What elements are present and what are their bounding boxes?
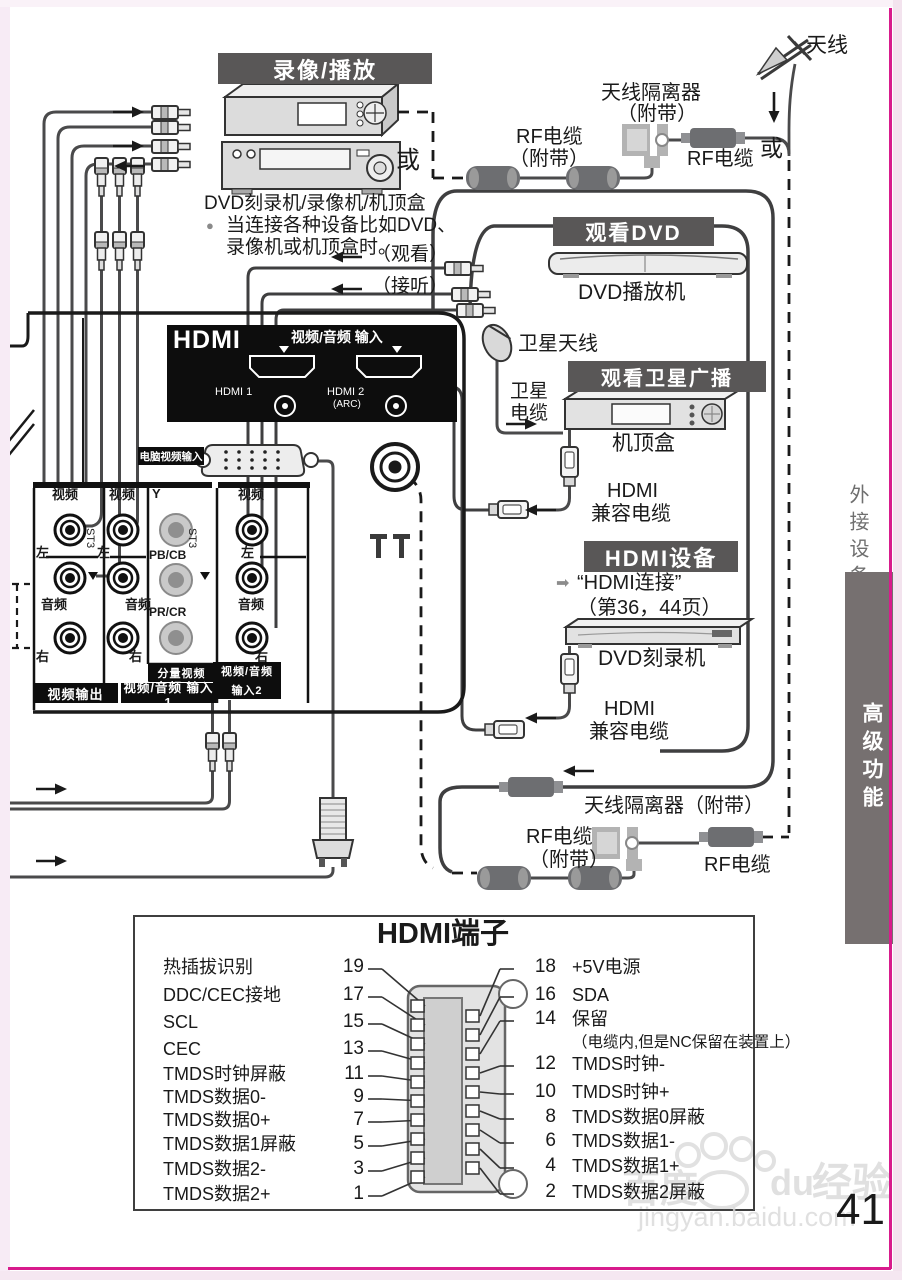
isolator-label-2: （附带） xyxy=(617,103,697,125)
hdmi2-label: HDMI 2 xyxy=(327,386,364,398)
frame-margin-bottom xyxy=(0,1271,902,1280)
rf-isolator-top xyxy=(622,124,668,168)
satellite-dish-label: 卫星天线 xyxy=(518,333,598,355)
antenna-icon xyxy=(758,36,811,79)
hdmi-cable-1a: HDMI xyxy=(607,480,658,502)
jack-audio-1: 音频 xyxy=(41,598,67,612)
frame-line-bottom xyxy=(8,1267,891,1270)
frame-margin-right xyxy=(893,0,902,1280)
jack-left-2: 左 xyxy=(97,546,110,560)
jack-y: Y xyxy=(152,487,161,501)
rf-cable-included-1: RF电缆 xyxy=(516,126,583,148)
pin-number-right: 16 xyxy=(518,985,556,1006)
pin-number-left: 15 xyxy=(300,1012,364,1033)
isolator-bottom-label: 天线隔离器（附带） xyxy=(584,795,764,817)
pinout-title: HDMI端子 xyxy=(133,919,753,951)
sidebar-section-external-devices: 外接设备 xyxy=(846,484,868,584)
frame-line-right xyxy=(889,8,892,1269)
jack-left-4: 左 xyxy=(241,546,254,560)
pin-number-left: 19 xyxy=(300,957,364,978)
jack-video-4: 视频 xyxy=(238,488,264,502)
rf-plug-bottom-left xyxy=(499,777,563,797)
jack-audio-4: 音频 xyxy=(238,598,264,612)
av-in1-label: 视频/音频 输入1 xyxy=(121,683,216,703)
set-top-box-label: 机顶盒 xyxy=(612,432,675,455)
rca-cluster-top xyxy=(152,106,190,171)
header-watch-satellite: 观看卫星广播 xyxy=(568,361,766,392)
vcr-device xyxy=(222,142,400,194)
rf-cable-label: RF电缆 xyxy=(687,148,754,170)
video-out-label: 视频输出 xyxy=(33,683,118,703)
pin-number-left: 5 xyxy=(300,1134,364,1155)
frame-margin-left xyxy=(0,0,10,1280)
set-top-box-device xyxy=(565,389,741,429)
pc-video-input-label: 电脑视频输入 xyxy=(138,447,204,465)
sidebar-tab-label: 高级功能 xyxy=(856,702,886,814)
hdmi-cable-2a: HDMI xyxy=(604,698,655,720)
dvd-recorder-label: DVD刻录机 xyxy=(598,647,705,670)
pin-number-left: 11 xyxy=(300,1064,364,1085)
pin-number-left: 3 xyxy=(300,1159,364,1180)
device-caption: DVD刻录机/录像机/机顶盒 xyxy=(204,194,426,215)
pin-number-right: 12 xyxy=(518,1054,556,1075)
jack-pb: PB/CB xyxy=(149,549,186,562)
jack-right-1: 右 xyxy=(36,650,49,664)
pin-label-right: TMDS数据1- xyxy=(572,1132,892,1152)
rf-plug-top xyxy=(681,128,745,148)
st3-label-2: ST3 xyxy=(186,528,198,548)
pin-number-right: 14 xyxy=(518,1009,556,1030)
note-line-1: 当连接各种设备比如DVD、 xyxy=(226,216,456,237)
pin-label-right: +5V电源 xyxy=(572,958,892,978)
hdmi-plug-stb xyxy=(561,447,578,486)
pin-note: （电缆内,但是NC保留在装置上） xyxy=(572,1034,902,1051)
hdmi-link-label: “HDMI连接” xyxy=(577,572,681,594)
rf-cable-bottom-label: RF电缆 xyxy=(704,854,771,876)
jack-audio-2: 音频 xyxy=(125,598,151,612)
rf-barrel-bottom-1 xyxy=(477,866,531,890)
pin-label-right: 保留 xyxy=(572,1010,892,1030)
header-record-playback: 录像/播放 xyxy=(218,53,432,84)
dvd-recorder-slim-device xyxy=(566,619,752,648)
av-in2-label-1: 视频/音频 xyxy=(213,662,281,680)
isolator-label-1: 天线隔离器 xyxy=(601,82,701,104)
pin-label-right: TMDS数据1+ xyxy=(572,1157,892,1177)
rf-included-bottom-2: （附带） xyxy=(529,849,609,871)
jack-right-2: 右 xyxy=(129,650,142,664)
pin-number-right: 6 xyxy=(518,1131,556,1152)
hdmi-link-arrow-icon: ➡ xyxy=(556,575,569,593)
listen-label: （接听） xyxy=(372,277,448,298)
satellite-dish-icon xyxy=(477,320,518,366)
arc-label: (ARC) xyxy=(333,399,361,410)
pin-number-right: 18 xyxy=(518,957,556,978)
hdmi-plug-tv-2 xyxy=(485,721,524,738)
or-label-1: 或 xyxy=(396,148,420,174)
frame-margin-top xyxy=(0,0,902,7)
rca-pair-bottom xyxy=(206,733,236,771)
pin-label-right: TMDS数据2屏蔽 xyxy=(572,1183,892,1203)
jack-left-1: 左 xyxy=(36,546,49,560)
hdmi1-label: HDMI 1 xyxy=(215,386,252,398)
hdmi-plug-recorder xyxy=(561,654,578,693)
rf-included-bottom-1: RF电缆 xyxy=(526,826,593,848)
av-input-label: 视频/音频 输入 xyxy=(291,330,383,345)
bullet-icon: ● xyxy=(206,219,214,233)
header-watch-dvd: 观看DVD xyxy=(553,217,714,246)
av-in2-label-2: 输入2 xyxy=(213,680,281,699)
hdmi-plug-tv-1 xyxy=(489,501,528,518)
satellite-cable-1: 卫星 xyxy=(510,382,548,403)
pin-number-right: 10 xyxy=(518,1082,556,1103)
watermark-url: jingyan.baidu.com xyxy=(638,1202,856,1233)
pin-number-right: 4 xyxy=(518,1156,556,1177)
hdmi-pages-label: （第36，44页） xyxy=(577,597,722,619)
hdmi-logo: HDMI xyxy=(173,327,241,355)
st3-label-1: ST3 xyxy=(84,528,96,548)
rf-cable-included-2: （附带） xyxy=(509,148,589,170)
jack-pr: PR/CR xyxy=(149,606,186,619)
vga-port xyxy=(196,445,318,476)
satellite-cable-2: 电缆 xyxy=(510,404,548,425)
dvd-player-device xyxy=(549,253,747,278)
pin-number-left: 7 xyxy=(300,1110,364,1131)
pin-label-right: TMDS时钟+ xyxy=(572,1083,892,1103)
hdmi-cable-2b: 兼容电缆 xyxy=(589,721,669,743)
header-hdmi-device: HDMI设备 xyxy=(584,541,738,572)
pin-number-left: 1 xyxy=(300,1184,364,1205)
jack-video-2: 视频 xyxy=(109,488,135,502)
pin-number-left: 17 xyxy=(300,985,364,1006)
pin-number-right: 8 xyxy=(518,1107,556,1128)
manual-page: 录像/播放 观看DVD 观看卫星广播 HDMI设备 或 DVD刻录机/录像机/机… xyxy=(0,0,902,1280)
jack-video-1: 视频 xyxy=(52,488,78,502)
vga-cable-connector xyxy=(313,798,353,867)
pin-label-right: TMDS数据0屏蔽 xyxy=(572,1108,892,1128)
rf-jack xyxy=(372,444,418,490)
pin-number-left: 9 xyxy=(300,1087,364,1108)
antenna-terminal-icon xyxy=(370,534,410,558)
pin-label-right: SDA xyxy=(572,986,892,1006)
pin-label-right: TMDS时钟- xyxy=(572,1055,892,1075)
or-label-2: 或 xyxy=(760,136,783,161)
rf-plug-bottom-right xyxy=(699,827,763,847)
pin-number-left: 13 xyxy=(300,1039,364,1060)
dvd-recorder-device xyxy=(225,84,398,135)
antenna-label: 天线 xyxy=(806,34,848,57)
hdmi-cable-1b: 兼容电缆 xyxy=(591,503,671,525)
pin-number-right: 2 xyxy=(518,1182,556,1203)
watch-label: （观看） xyxy=(372,245,448,266)
dvd-player-label: DVD播放机 xyxy=(578,281,685,304)
